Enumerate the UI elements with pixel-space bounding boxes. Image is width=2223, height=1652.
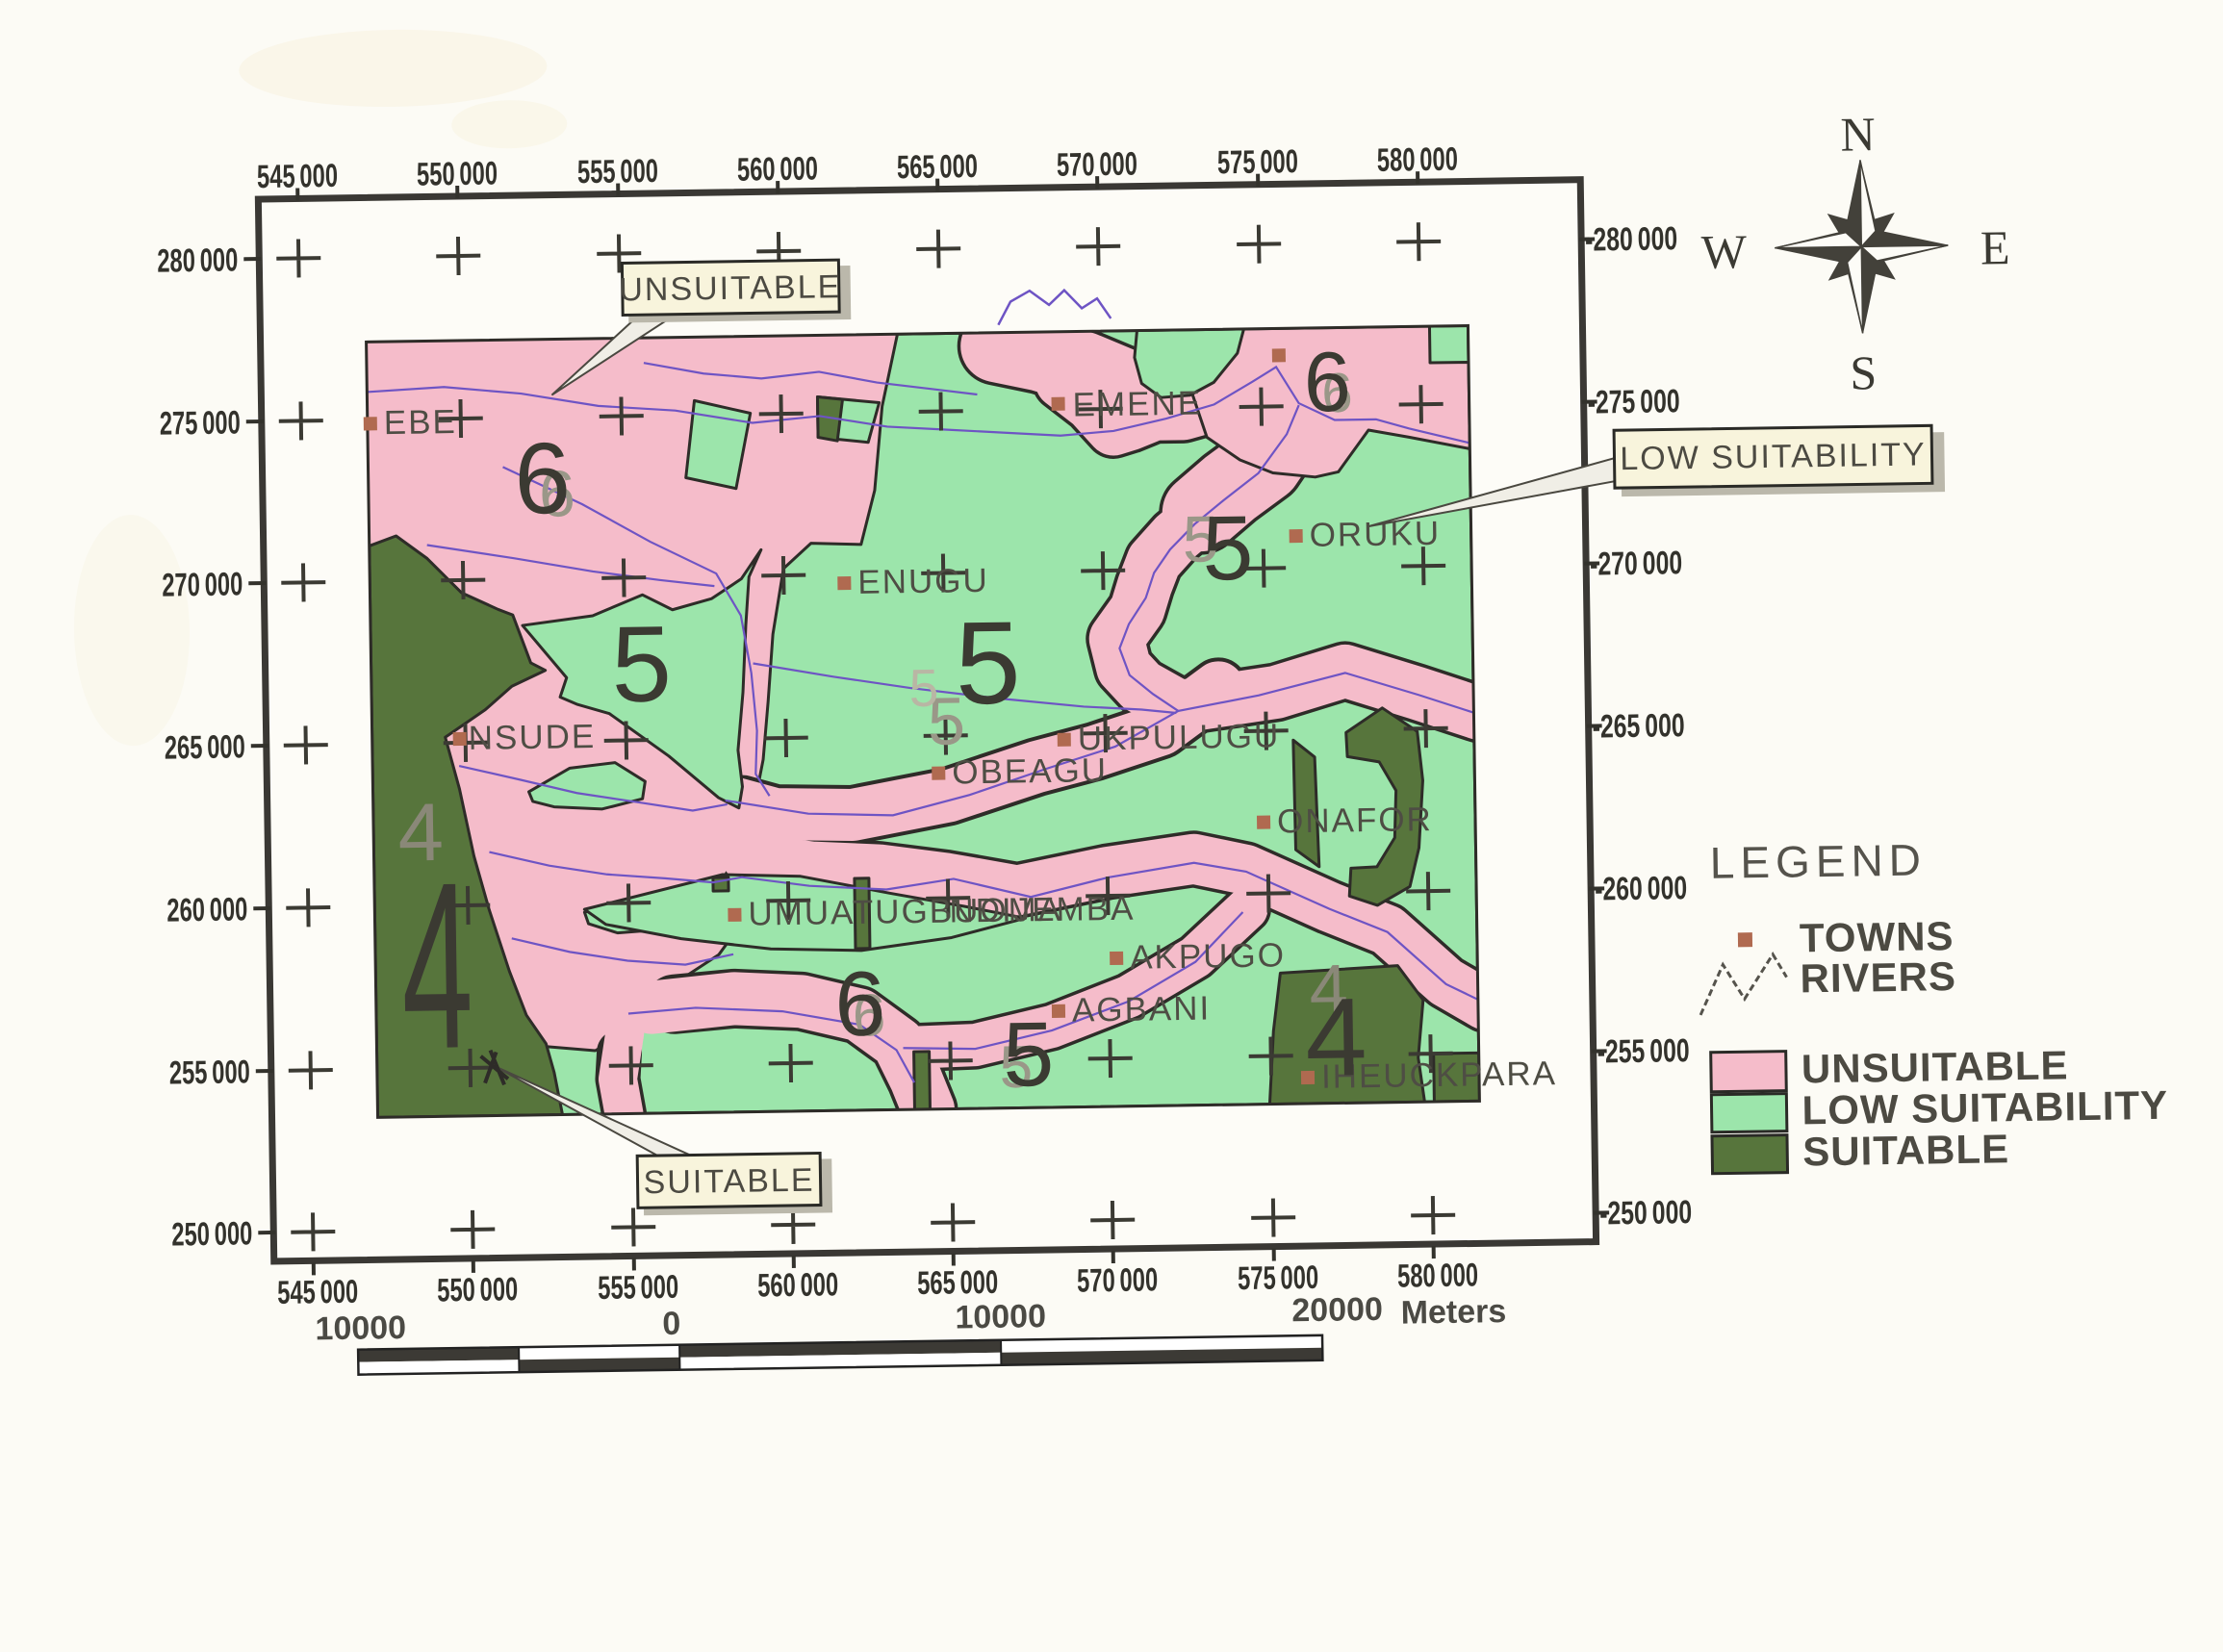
svg-text:560 000: 560 000	[757, 1266, 839, 1304]
svg-text:265 000: 265 000	[165, 728, 246, 766]
svg-text:NDIJEMBA: NDIJEMBA	[949, 890, 1136, 930]
svg-text:550 000: 550 000	[437, 1271, 519, 1309]
svg-text:260 000: 260 000	[166, 891, 248, 928]
svg-text:-280 000: -280 000	[1585, 220, 1678, 258]
svg-text:-265 000: -265 000	[1592, 707, 1685, 745]
svg-text:280 000: 280 000	[157, 241, 239, 279]
svg-text:LOW SUITABILITY: LOW SUITABILITY	[1620, 436, 1927, 477]
svg-text:5: 5	[908, 658, 939, 718]
svg-text:UKPULUGU: UKPULUGU	[1077, 717, 1280, 757]
svg-text:N: N	[1840, 107, 1876, 162]
svg-text:-275 000: -275 000	[1587, 383, 1680, 420]
svg-text:SUITABLE: SUITABLE	[643, 1162, 814, 1202]
svg-text:S: S	[1850, 345, 1878, 399]
svg-text:W: W	[1700, 224, 1748, 279]
svg-text:4: 4	[1304, 976, 1367, 1100]
svg-text:20000: 20000	[1291, 1291, 1383, 1329]
svg-text:555 000: 555 000	[598, 1269, 679, 1307]
svg-text:AGBANI: AGBANI	[1072, 989, 1212, 1029]
svg-text:10000: 10000	[955, 1298, 1046, 1335]
svg-text:EMENE: EMENE	[1072, 385, 1202, 424]
svg-text:RIVERS: RIVERS	[1800, 953, 1956, 1001]
svg-text:0: 0	[662, 1306, 680, 1342]
svg-text:10000: 10000	[315, 1309, 406, 1347]
svg-text:OBEAGU: OBEAGU	[952, 751, 1108, 791]
svg-text:-250 000: -250 000	[1599, 1194, 1693, 1232]
svg-text:250 000: 250 000	[171, 1215, 253, 1253]
svg-text:-270 000: -270 000	[1590, 545, 1683, 582]
svg-text:5: 5	[611, 603, 673, 724]
svg-text:5: 5	[1002, 1004, 1054, 1106]
svg-text:LOW SUITABILITY: LOW SUITABILITY	[1801, 1082, 2168, 1133]
svg-text:NSUDE: NSUDE	[468, 718, 596, 757]
svg-text:6: 6	[1303, 334, 1351, 430]
svg-text:SUITABLE: SUITABLE	[1802, 1126, 2010, 1174]
svg-text:580 000: 580 000	[1397, 1257, 1479, 1294]
svg-text:255 000: 255 000	[169, 1054, 251, 1091]
svg-text:LEGEND: LEGEND	[1709, 834, 1927, 887]
svg-text:4: 4	[399, 832, 474, 1098]
svg-text:ENUGU: ENUGU	[857, 562, 989, 601]
svg-text:545 000: 545 000	[277, 1274, 359, 1311]
svg-text:6: 6	[514, 422, 572, 536]
svg-text:Meters: Meters	[1400, 1293, 1506, 1332]
svg-text:E: E	[1980, 220, 2010, 274]
svg-text:275 000: 275 000	[160, 404, 242, 442]
svg-text:565 000: 565 000	[917, 1264, 999, 1302]
svg-text:EBE: EBE	[384, 403, 458, 442]
svg-text:UNSUITABLE: UNSUITABLE	[619, 268, 842, 308]
svg-text:-255 000: -255 000	[1597, 1032, 1690, 1070]
svg-text:ONAFOR: ONAFOR	[1277, 801, 1433, 840]
svg-text:270 000: 270 000	[162, 566, 243, 603]
svg-text:570 000: 570 000	[1077, 1261, 1159, 1299]
svg-text:-260 000: -260 000	[1595, 870, 1688, 907]
svg-text:AKPUGO: AKPUGO	[1130, 936, 1286, 976]
svg-text:ORUKU: ORUKU	[1309, 515, 1441, 554]
svg-text:5: 5	[1202, 497, 1254, 600]
svg-text:5: 5	[955, 597, 1022, 728]
svg-text:6: 6	[834, 953, 886, 1056]
